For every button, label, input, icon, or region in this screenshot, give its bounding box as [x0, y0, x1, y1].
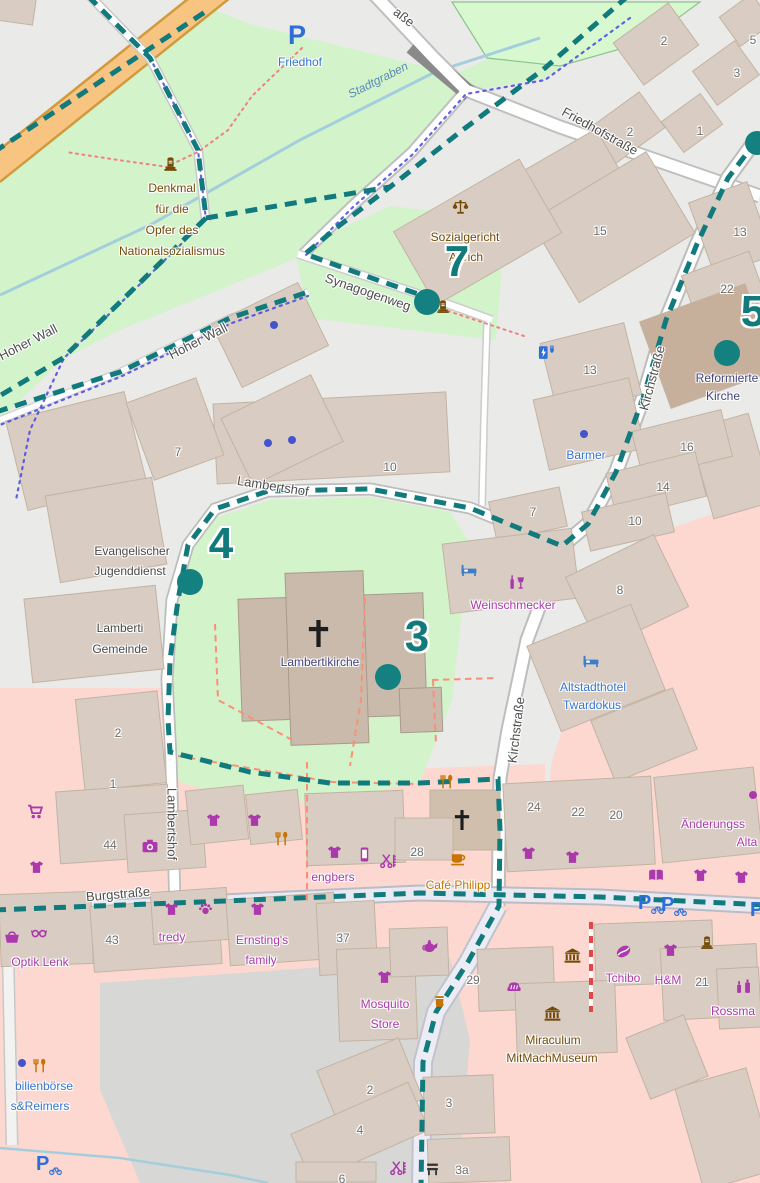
- housenumber: 20: [609, 808, 622, 822]
- clothes-shop-icon: [29, 860, 44, 875]
- clothes-shop-icon: [247, 813, 262, 828]
- poi-dot-icon: [749, 791, 757, 799]
- poi-label-ernstings-family: Ernsting's: [236, 933, 288, 947]
- optician-glasses-icon: [31, 925, 47, 941]
- poi-label-mosquito-store: Store: [371, 1017, 400, 1031]
- poi-dot-icon: [264, 439, 272, 447]
- housenumber: 13: [583, 363, 596, 377]
- photo-shop-camera-icon: [142, 838, 158, 854]
- housenumber: 1: [697, 124, 704, 138]
- waypoint-3-circle[interactable]: [375, 664, 401, 690]
- museum-icon: [544, 1006, 561, 1023]
- poi-label-lamberti-gemeinde: Gemeinde: [92, 642, 147, 656]
- clothes-shop-icon: [327, 845, 342, 860]
- poi-label-altstadthotel: Altstadthotel: [560, 680, 626, 694]
- wine-bar-icon: [508, 574, 525, 591]
- hotel-bed-icon: [461, 562, 477, 578]
- poi-label-reformierte-kirche: Reformierte: [696, 371, 759, 385]
- waypoint-3-number[interactable]: 3: [405, 612, 429, 662]
- church-cross-icon: [452, 810, 472, 830]
- restaurant-cutlery-icon: [274, 831, 290, 847]
- poi-label-evangelischer-jugenddienst: Jugenddienst: [94, 564, 165, 578]
- housenumber: 3: [446, 1096, 453, 1110]
- poi-label-rossmann: Rossma: [711, 1004, 755, 1018]
- poi-label-denkmal: Opfer des: [146, 223, 199, 237]
- waypoint-4-circle[interactable]: [177, 569, 203, 595]
- bench-icon: [425, 1162, 440, 1177]
- clothes-shop-icon: [565, 850, 580, 865]
- housenumber: 44: [103, 838, 116, 852]
- housenumber: 24: [527, 800, 540, 814]
- poi-label-weinschmecker: Weinschmecker: [470, 598, 555, 612]
- poi-label-cafe-philipp: Café Philipp: [426, 878, 491, 892]
- housenumber: 3a: [455, 1163, 468, 1177]
- clothes-shop-icon: [693, 868, 708, 883]
- housenumber: 21: [695, 975, 708, 989]
- hairdresser-scissors-icon: [390, 1160, 406, 1176]
- housenumber: 8: [617, 583, 624, 597]
- hairdresser-scissors-icon: [380, 853, 396, 869]
- poi-label-ernstings-family: family: [245, 953, 276, 967]
- housenumber: 10: [383, 460, 396, 474]
- waypoint-4-number[interactable]: 4: [209, 519, 233, 569]
- poi-label-friedhof: Friedhof: [278, 55, 322, 69]
- clothes-shop-icon: [734, 870, 749, 885]
- poi-label-lamberti-gemeinde: Lamberti: [97, 621, 144, 635]
- housenumber: 15: [593, 224, 606, 238]
- housenumber: 7: [175, 445, 182, 459]
- poi-label-immobilienboerse: s&Reimers: [11, 1099, 70, 1113]
- poi-label-miraculum: MitMachMuseum: [506, 1051, 597, 1065]
- housenumber: 3: [734, 66, 741, 80]
- housenumber: 5: [750, 33, 757, 47]
- poi-dot-icon: [18, 1059, 26, 1067]
- poi-dot-icon: [580, 430, 588, 438]
- housenumber: 28: [410, 845, 423, 859]
- parking-icon: P: [750, 900, 760, 920]
- street-label-lambertshof-south: Lambertshof: [165, 788, 180, 860]
- housenumber: 2: [661, 34, 668, 48]
- housenumber: 29: [466, 973, 479, 987]
- poi-label-aenderungsschneiderei: Alta: [737, 835, 758, 849]
- clothes-shop-icon: [377, 970, 392, 985]
- memorial-icon: [699, 935, 715, 951]
- waypoint-5-number[interactable]: 5: [741, 287, 760, 337]
- poi-label-altstadthotel: Twardokus: [563, 698, 621, 712]
- housenumber: 6: [339, 1172, 346, 1183]
- parking-icon: P: [288, 22, 306, 49]
- poi-label-optik-lenk: Optik Lenk: [11, 955, 68, 969]
- coffee-shop-bean-icon: [615, 943, 632, 960]
- poi-label-denkmal: für die: [155, 202, 188, 216]
- clothes-shop-icon: [663, 943, 678, 958]
- housenumber: 4: [357, 1123, 364, 1137]
- poi-label-tredy: tredy: [159, 930, 186, 944]
- poi-label-miraculum: Miraculum: [525, 1033, 580, 1047]
- poi-dot-icon: [270, 321, 278, 329]
- poi-dot-icon: [288, 436, 296, 444]
- poi-label-immobilienboerse: bilienbörse: [15, 1079, 73, 1093]
- poi-label-hm: H&M: [655, 973, 682, 987]
- housenumber: 2: [367, 1083, 374, 1097]
- housenumber: 2: [627, 125, 634, 139]
- poi-label-aenderungsschneiderei: Änderungss: [681, 817, 745, 831]
- housenumber: 10: [628, 514, 641, 528]
- book-shop-icon: [648, 868, 664, 884]
- bicycle-parking-icon: P: [36, 1154, 62, 1176]
- poi-label-engbers: engbers: [311, 870, 354, 884]
- map-canvas[interactable]: P P P P P Friedhofstraße aße Kirchstraße…: [0, 0, 760, 1183]
- shop-basket-icon: [4, 929, 20, 945]
- motorcycle-parking-icon: P: [661, 895, 687, 917]
- housenumber: 7: [530, 505, 537, 519]
- restaurant-cutlery-icon: [439, 774, 455, 790]
- pet-shop-paw-icon: [198, 901, 213, 916]
- museum-icon: [564, 948, 581, 965]
- housenumber: 43: [105, 933, 118, 947]
- charging-station-icon: [462, 344, 477, 359]
- church-cross-icon: [305, 620, 332, 647]
- clothes-shop-icon: [164, 902, 179, 917]
- poi-label-mosquito-store: Mosquito: [361, 997, 410, 1011]
- memorial-icon: [435, 299, 451, 315]
- hotel-bed-icon: [583, 653, 599, 669]
- courthouse-scales-icon: [452, 199, 469, 216]
- housenumber: 16: [680, 440, 693, 454]
- cosmetics-shop-icon: [736, 978, 752, 994]
- housenumber: 37: [336, 931, 349, 945]
- clothes-shop-icon: [206, 813, 221, 828]
- waypoint-5-circle[interactable]: [714, 340, 740, 366]
- poi-label-tchibo: Tchibo: [606, 971, 641, 985]
- drink-cup-icon: [432, 994, 447, 1009]
- housenumber: 13: [733, 225, 746, 239]
- waypoint-7-number[interactable]: 7: [445, 237, 469, 287]
- poi-label-evangelischer-jugenddienst: Evangelischer: [94, 544, 169, 558]
- poi-label-barmer: Barmer: [566, 448, 605, 462]
- mobile-phone-shop-icon: [357, 847, 372, 862]
- housenumber: 1: [110, 777, 117, 791]
- memorial-icon: [162, 156, 179, 173]
- clothes-shop-icon: [521, 846, 536, 861]
- housenumber: 2: [115, 726, 122, 740]
- poi-label-denkmal: Denkmal: [148, 181, 195, 195]
- supermarket-cart-icon: [27, 804, 43, 820]
- housenumber: 14: [656, 480, 669, 494]
- housenumber: 22: [720, 282, 733, 296]
- restaurant-cutlery-icon: [32, 1058, 48, 1074]
- cafe-cup-icon: [450, 850, 467, 867]
- housenumber: 22: [571, 805, 584, 819]
- teapot-shop-icon: [422, 938, 438, 954]
- charging-station-icon: [538, 344, 554, 360]
- bakery-bread-icon: [506, 979, 522, 995]
- poi-label-reformierte-kirche: Kirche: [706, 389, 740, 403]
- clothes-shop-icon: [250, 902, 265, 917]
- poi-label-denkmal: Nationalsozialismus: [119, 244, 225, 258]
- poi-label-lambertikirche: Lambertikirche: [281, 655, 360, 669]
